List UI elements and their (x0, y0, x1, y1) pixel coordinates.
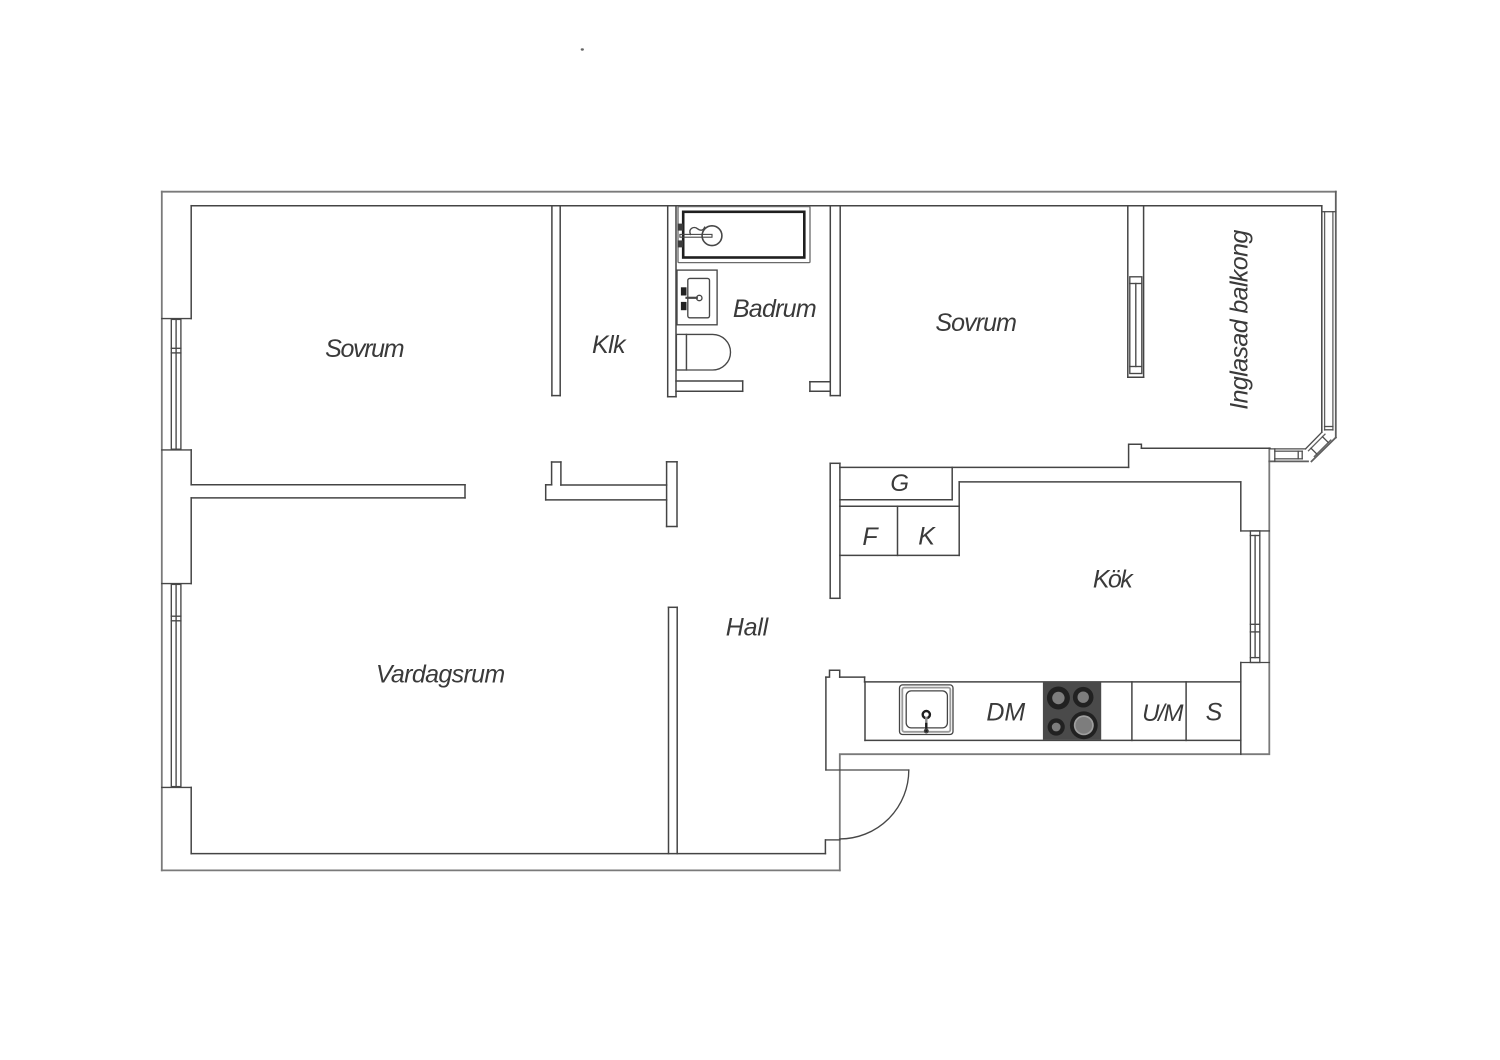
svg-text:Klk: Klk (592, 331, 627, 359)
svg-text:S: S (1206, 698, 1223, 726)
svg-text:Sovrum: Sovrum (935, 309, 1016, 337)
svg-text:K: K (918, 522, 936, 550)
svg-text:Kök: Kök (1093, 565, 1134, 593)
svg-text:F: F (862, 523, 879, 551)
svg-text:U/M: U/M (1142, 700, 1183, 727)
svg-text:Vardagsrum: Vardagsrum (376, 660, 505, 688)
svg-text:Sovrum: Sovrum (325, 335, 404, 363)
svg-text:Badrum: Badrum (733, 295, 816, 323)
svg-text:G: G (890, 470, 909, 497)
svg-text:DM: DM (986, 698, 1025, 726)
svg-text:Hall: Hall (726, 614, 770, 642)
svg-text:Inglasad balkong: Inglasad balkong (1226, 230, 1254, 410)
